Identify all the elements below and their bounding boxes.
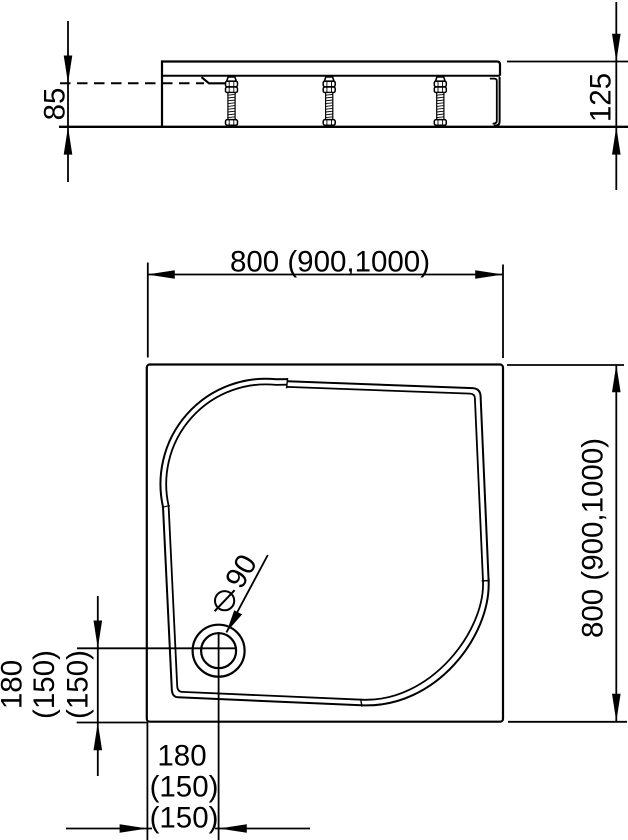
svg-text:(150): (150): [28, 650, 61, 719]
svg-text:180: 180: [0, 660, 28, 709]
svg-text:(150): (150): [150, 771, 219, 804]
svg-text:(150): (150): [150, 802, 219, 835]
svg-text:125: 125: [585, 73, 618, 122]
svg-text:(150): (150): [61, 650, 94, 719]
svg-text:180: 180: [157, 740, 206, 773]
svg-text:800 (900,1000): 800 (900,1000): [230, 246, 430, 279]
svg-text:800 (900,1000): 800 (900,1000): [577, 438, 610, 638]
svg-text:85: 85: [39, 88, 72, 121]
svg-text:90: 90: [219, 549, 264, 594]
